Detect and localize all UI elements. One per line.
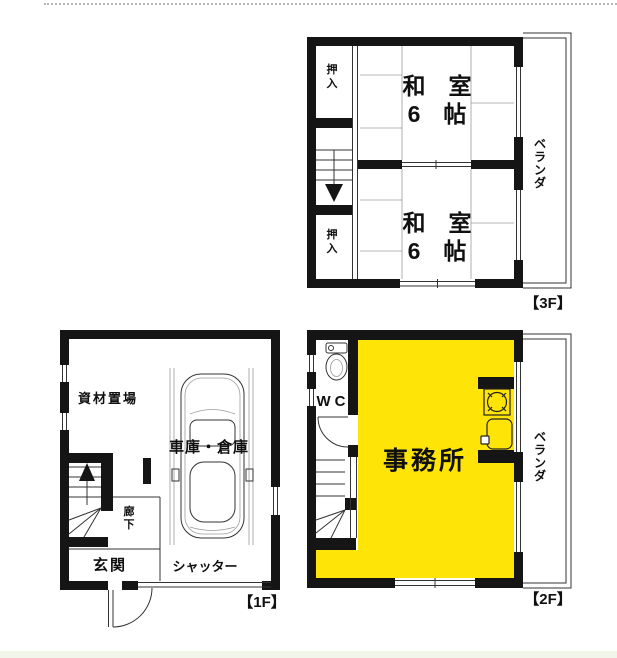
room-size-washitsu-lower: 6 帖 <box>408 238 467 264</box>
office-label: 事務所 <box>383 447 467 475</box>
floor-plan-3f: 押入 押入 和 室 6 帖 和 室 6 帖 ベランダ 【3F】 <box>300 26 592 318</box>
floorplan-page: 押入 押入 和 室 6 帖 和 室 6 帖 ベランダ 【3F】 <box>0 0 617 658</box>
stairs-3f <box>316 150 352 202</box>
entrance-door-swing-icon <box>109 588 153 627</box>
closet-door-track-3f <box>353 46 358 279</box>
veranda-label-2f: ベランダ <box>534 430 546 483</box>
hallway-label: 廊下 <box>124 504 135 531</box>
page-bottom-strip <box>0 651 617 658</box>
stairs-1f <box>69 463 101 537</box>
wc-label: WC <box>317 393 350 410</box>
garage-bay-lines <box>170 368 253 545</box>
up-arrow-icon <box>79 463 95 481</box>
stair-partition-2f <box>351 457 357 538</box>
floor-plan-1f: 資材置場 車庫・倉庫 廊下 玄関 シャッター 【1F】 <box>48 322 296 632</box>
shutter-door-1f <box>138 583 271 588</box>
entrance-label: 玄関 <box>93 556 127 574</box>
room-label-washitsu-lower: 和 室 <box>403 210 472 236</box>
floor-label-2f: 【2F】 <box>524 590 572 608</box>
floor-label-1f: 【1F】 <box>238 593 286 611</box>
floor-plan-2f: WC 事務所 ベランダ 【2F】 <box>300 322 590 618</box>
stairs-2f <box>316 460 345 538</box>
storage-label: 資材置場 <box>78 391 138 406</box>
garage-label: 車庫・倉庫 <box>169 438 249 456</box>
floor-label-3f: 【3F】 <box>524 294 572 312</box>
room-size-washitsu-upper: 6 帖 <box>408 101 467 127</box>
veranda-label-3f: ベランダ <box>534 137 546 190</box>
car-icon <box>172 374 253 538</box>
page-top-dotted-line <box>44 3 617 5</box>
sliding-door-3f <box>402 160 471 169</box>
closet-label-upper-3f: 押入 <box>327 62 338 90</box>
room-label-washitsu-upper: 和 室 <box>403 73 472 99</box>
veranda-rail-3f <box>523 33 571 288</box>
toilet-icon <box>326 343 347 380</box>
shutter-label: シャッター <box>172 559 237 574</box>
wc-door-swing-icon <box>318 417 348 447</box>
down-arrow-icon <box>325 184 343 202</box>
closet-label-lower-3f: 押入 <box>327 227 338 255</box>
veranda-rail-2f <box>523 334 571 588</box>
